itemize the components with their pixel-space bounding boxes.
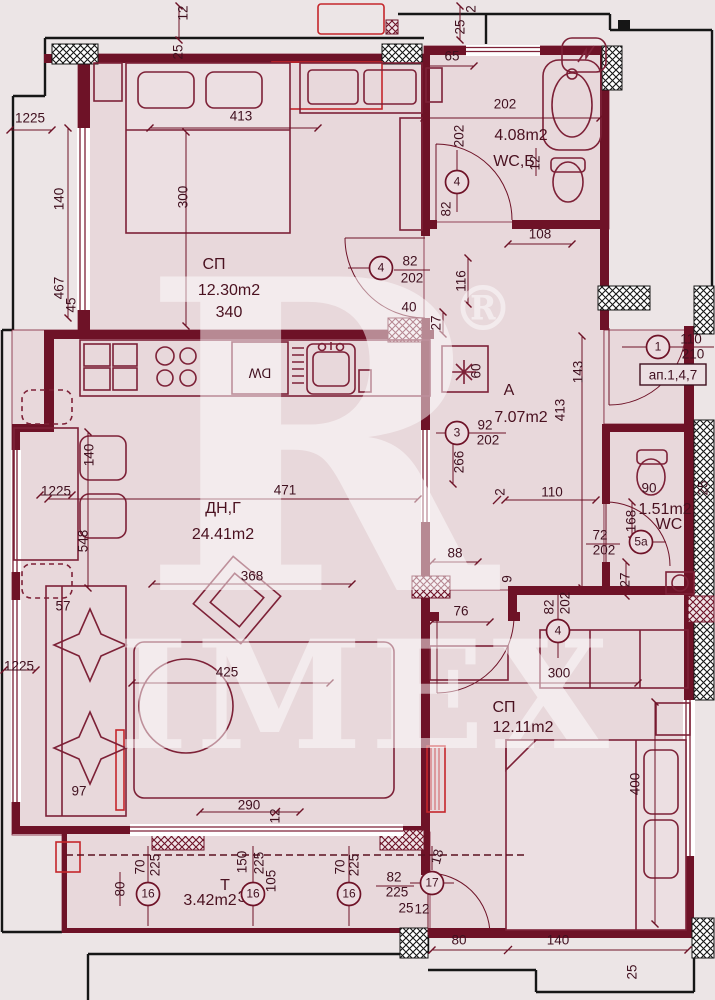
room-area-terrace: 3.42m2	[183, 892, 236, 909]
room-area-living: 24.41m2	[192, 526, 254, 543]
dim-label: 140	[547, 933, 570, 948]
dim-label: 27	[429, 315, 444, 330]
dim-label: 225	[148, 854, 163, 877]
dim-label: 467	[52, 277, 67, 300]
dim-label: 300	[176, 186, 191, 209]
dim-label: 45	[64, 297, 79, 312]
dim-label: 266	[452, 451, 467, 474]
dim-label: 60	[469, 363, 484, 378]
dim-label: 57	[55, 599, 70, 614]
dim-label: 82	[386, 870, 401, 885]
dim-label: 72	[592, 528, 607, 543]
svg-text:17: 17	[425, 876, 439, 890]
room-label-living: ДН,Г	[205, 500, 241, 517]
floor-plan-drawing: ап.1,4,7 R ® IMEX СП12.30m23404.08m2WC,Б…	[0, 0, 715, 1000]
door-marker-1: 1	[647, 336, 670, 359]
door-marker-17: 17	[421, 872, 444, 895]
dim-label: 140	[52, 188, 67, 211]
stair-detail	[618, 20, 630, 30]
door-marker-16: 16	[338, 883, 361, 906]
dim-label: 368	[241, 569, 264, 584]
svg-text:16: 16	[246, 887, 260, 901]
room-area-bedroom1: 12.30m2	[198, 282, 260, 299]
dim-label: 105	[264, 870, 279, 893]
dim-label: 143	[571, 361, 586, 384]
dim-label: 70	[333, 859, 348, 874]
dim-label: 202	[593, 543, 616, 558]
dim-label: 2	[464, 5, 479, 13]
dim-label: 2	[493, 488, 508, 496]
dim-label: 110	[541, 485, 563, 500]
svg-text:4: 4	[454, 175, 461, 189]
door-marker-4: 4	[547, 620, 570, 643]
dim-label: 1225	[4, 659, 34, 674]
door-marker-4: 4	[446, 171, 469, 194]
room-area-bath: 4.08m2	[494, 127, 547, 144]
dim-label: 290	[238, 798, 261, 813]
room-label-bedroom1: СП	[202, 256, 225, 273]
apartment-ref-label: ап.1,4,7	[649, 368, 698, 383]
dim-label: 140	[82, 444, 97, 467]
dim-label: 12	[414, 902, 429, 917]
svg-text:3: 3	[454, 426, 461, 440]
dim-label: 40	[401, 300, 416, 315]
dim-label: 225	[386, 885, 409, 900]
dim-label: 25	[625, 964, 640, 979]
dim-label: 9	[500, 575, 515, 583]
dim-label: 92	[477, 418, 492, 433]
room-note-bedroom1: 340	[216, 304, 243, 321]
dim-label: 413	[230, 109, 253, 124]
dim-label: 1225	[41, 484, 71, 499]
dim-label: 82	[542, 599, 557, 614]
dim-label: 400	[628, 773, 643, 796]
room-area-bedroom2: 12.11m2	[492, 719, 553, 736]
dim-label: 97	[71, 784, 86, 799]
door-marker-16: 16	[242, 883, 265, 906]
dim-label: 80	[451, 933, 466, 948]
room-label-wc: WC	[656, 516, 683, 533]
dim-label: 1225	[15, 111, 45, 126]
dim-label: 82	[439, 201, 454, 216]
dim-label: 76	[453, 604, 468, 619]
dim-label: 110	[680, 332, 702, 347]
dim-label: 548	[76, 530, 91, 553]
dim-label: 27	[618, 572, 633, 587]
dim-label: 202	[452, 125, 467, 148]
dim-label: 25	[696, 480, 711, 495]
dim-label: 25	[398, 901, 413, 916]
dim-label: 413	[553, 399, 568, 422]
room-area-hall: 7.07m2	[494, 409, 547, 426]
svg-text:4: 4	[378, 261, 385, 275]
svg-text:1: 1	[655, 340, 662, 354]
watermark-word: IMEX	[118, 608, 617, 784]
dim-label: 70	[133, 859, 148, 874]
dishwasher-label: DW	[249, 365, 272, 380]
door-marker-16: 16	[137, 883, 160, 906]
dim-label: 300	[548, 666, 571, 681]
door-marker-5a: 5a	[630, 531, 653, 554]
svg-text:16: 16	[141, 887, 155, 901]
dim-label: 202	[477, 433, 500, 448]
dim-label: 88	[447, 546, 462, 561]
dim-label: 108	[529, 227, 552, 242]
dim-label: 12	[176, 5, 191, 20]
door-marker-3: 3	[446, 422, 469, 445]
dim-label: 80	[113, 881, 128, 896]
dim-label: 225	[347, 854, 362, 877]
dim-label: 90	[641, 481, 656, 496]
dim-label: 202	[558, 592, 573, 615]
dim-label: 116	[454, 270, 469, 292]
svg-text:16: 16	[342, 887, 356, 901]
dim-label: 210	[682, 347, 705, 362]
dim-label: 471	[274, 483, 297, 498]
dim-label: 202	[494, 97, 517, 112]
ac-unit	[318, 4, 384, 34]
dim-label: 25	[171, 44, 186, 59]
dim-label: 12	[268, 808, 283, 823]
door-marker-4: 4	[370, 257, 393, 280]
dim-label: 12	[528, 155, 543, 170]
dim-label: 65	[444, 49, 459, 64]
floor-plan-canvas: ап.1,4,7 R ® IMEX СП12.30m23404.08m2WC,Б…	[0, 0, 715, 1000]
room-label-hall: A	[504, 382, 515, 399]
dim-label: 202	[401, 271, 424, 286]
dim-label: 82	[402, 254, 417, 269]
dim-label: 425	[216, 665, 239, 680]
dim-label: 150	[235, 851, 250, 874]
room-label-bedroom2: СП	[492, 699, 515, 716]
dim-label: 25	[453, 19, 468, 34]
svg-text:4: 4	[555, 624, 562, 638]
dim-label: 168	[624, 510, 639, 533]
svg-text:5a: 5a	[634, 535, 648, 549]
